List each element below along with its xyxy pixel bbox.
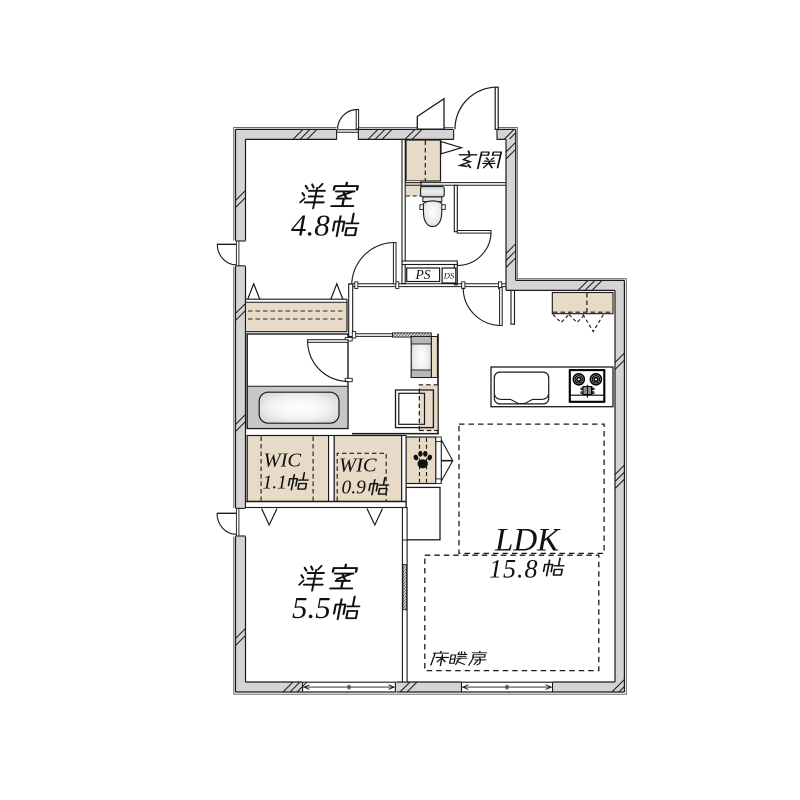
svg-text:DS: DS xyxy=(443,271,455,281)
svg-text:WIC: WIC xyxy=(264,450,302,472)
svg-text:0.9: 0.9 xyxy=(342,478,367,499)
svg-text:1.1: 1.1 xyxy=(263,473,287,494)
svg-text:PS: PS xyxy=(415,267,431,282)
svg-text:WIC: WIC xyxy=(339,455,377,477)
svg-text:4.8: 4.8 xyxy=(291,208,330,243)
svg-text:15.8: 15.8 xyxy=(489,555,539,584)
svg-text:LDK: LDK xyxy=(494,523,561,559)
svg-text:5.5: 5.5 xyxy=(292,590,331,625)
